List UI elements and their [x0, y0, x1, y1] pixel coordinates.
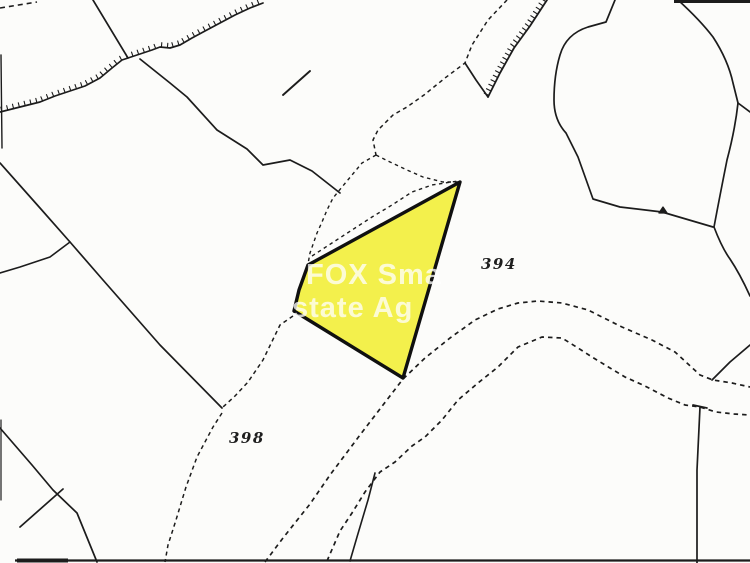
- hatch-tick: [30, 100, 31, 104]
- hatch-tick: [149, 46, 150, 50]
- hatch-tick: [257, 0, 259, 4]
- boundary-line: [0, 242, 70, 273]
- boundary-line: [738, 103, 750, 112]
- hatch-tick: [246, 5, 248, 9]
- hatch-tick: [511, 44, 515, 47]
- parcel-number-398: 398: [229, 429, 265, 447]
- hatch-tick: [230, 13, 232, 17]
- hatch-tick: [187, 36, 189, 40]
- hatch-tick: [505, 53, 509, 55]
- hatch-tick: [198, 30, 200, 34]
- hatch-tick: [534, 12, 538, 15]
- hatch-tick: [503, 58, 507, 61]
- map-canvas: [0, 0, 750, 563]
- hatch-tick: [58, 90, 59, 94]
- highlighted-parcel: [294, 182, 460, 378]
- hatch-tick: [493, 75, 497, 77]
- boundary-line: [93, 0, 128, 58]
- hatch-tick: [91, 78, 93, 82]
- boundary-line: [554, 0, 713, 227]
- hatch-tick: [539, 3, 543, 6]
- hatch-tick: [114, 61, 117, 65]
- hatched-slope-line: [488, 0, 547, 97]
- hatch-tick: [18, 103, 19, 107]
- hatch-tick: [203, 27, 205, 31]
- hatch-tick: [496, 71, 501, 73]
- hatch-tick: [491, 80, 496, 82]
- hatch-tick: [96, 75, 98, 79]
- hatch-tick: [143, 48, 145, 52]
- hatch-tick: [514, 40, 518, 43]
- hatch-tick: [13, 104, 14, 108]
- hatch-tick: [120, 56, 122, 60]
- hatch-tick: [508, 49, 512, 52]
- hatch-tick: [219, 18, 221, 22]
- hatched-slope-line: [0, 3, 263, 112]
- hatch-tick: [100, 72, 103, 75]
- boundary-line: [0, 163, 222, 408]
- dashed-boundary: [223, 316, 293, 407]
- hatch-tick: [501, 62, 505, 64]
- hatch-tick: [252, 3, 254, 7]
- hatch-tick: [154, 44, 156, 48]
- hatch-tick: [489, 84, 494, 86]
- hatch-tick: [531, 16, 535, 19]
- hatch-tick: [525, 24, 529, 27]
- hatch-tick: [182, 39, 184, 43]
- hatch-tick: [208, 24, 210, 28]
- hatch-tick: [132, 52, 134, 56]
- boundary-line: [678, 0, 750, 296]
- boundary-line: [659, 207, 667, 213]
- hatch-tick: [172, 43, 173, 47]
- hatch-tick: [193, 33, 195, 37]
- cadastral-map: 394 398 FOX Sma state Ag: [0, 0, 750, 563]
- boundary-line: [465, 63, 488, 97]
- hatch-tick: [214, 21, 216, 25]
- dashed-boundary: [373, 0, 507, 155]
- dashed-boundary: [165, 413, 222, 562]
- boundary-line: [697, 407, 700, 563]
- hatch-tick: [69, 87, 71, 91]
- hatch-tick: [126, 54, 127, 58]
- hatch-tick: [528, 20, 532, 23]
- hatch-tick: [536, 7, 540, 10]
- hatch-tick: [47, 95, 49, 99]
- hatch-tick: [523, 28, 527, 31]
- hatch-tick: [487, 89, 492, 91]
- hatch-tick: [64, 88, 66, 92]
- hatch-tick: [241, 7, 243, 11]
- hatch-tick: [178, 41, 179, 45]
- hatch-tick: [41, 97, 43, 101]
- hatch-tick: [498, 66, 502, 68]
- boundary-line: [20, 489, 63, 527]
- boundary-line: [0, 428, 97, 562]
- parcel-number-394: 394: [481, 255, 517, 273]
- hatch-tick: [86, 81, 88, 85]
- hatch-tick: [110, 64, 113, 68]
- hatch-tick: [81, 83, 82, 87]
- hatch-tick: [75, 85, 77, 89]
- dashed-boundary: [376, 155, 459, 182]
- boundary-line: [1, 55, 2, 148]
- boundary-line: [283, 71, 310, 95]
- hatch-tick: [24, 101, 25, 105]
- hatch-tick: [235, 10, 237, 14]
- boundary-line: [350, 473, 375, 561]
- boundary-line: [140, 59, 340, 193]
- dashed-boundary: [265, 301, 750, 562]
- hatch-tick: [517, 36, 521, 39]
- hatch-tick: [52, 92, 54, 96]
- hatch-tick: [520, 32, 524, 35]
- dashed-boundary: [0, 2, 37, 8]
- hatch-tick: [105, 68, 108, 72]
- boundary-line: [712, 345, 750, 380]
- hatch-tick: [137, 50, 139, 54]
- hatch-tick: [224, 16, 226, 20]
- hatch-tick: [542, 0, 546, 2]
